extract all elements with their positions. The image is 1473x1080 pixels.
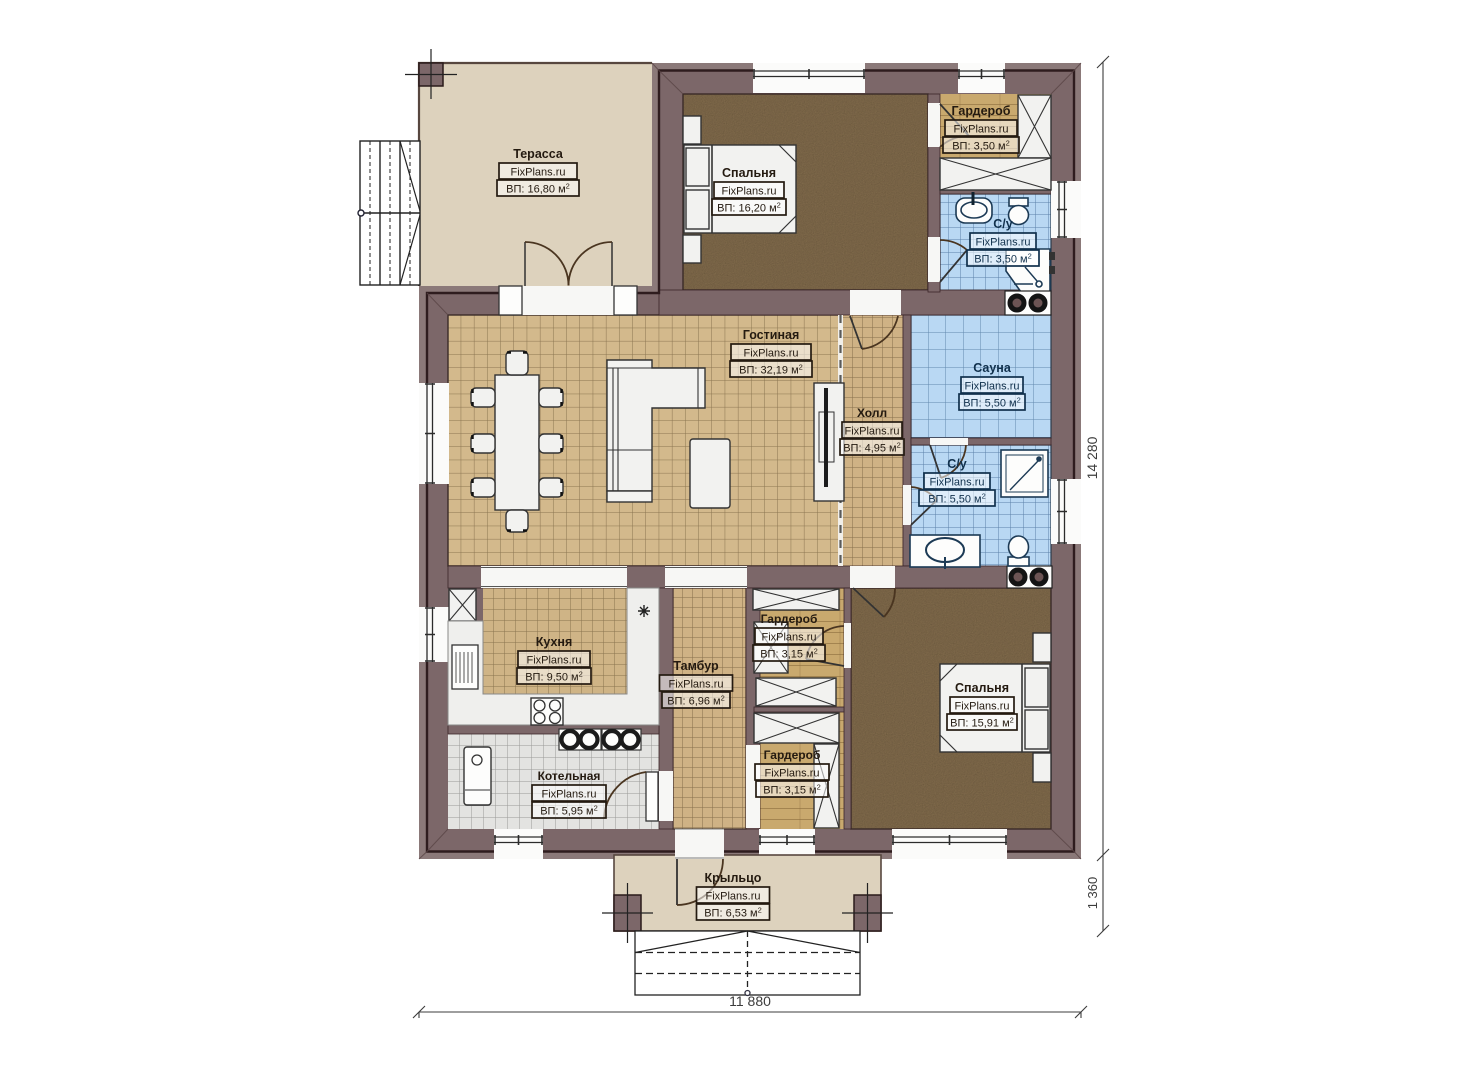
svg-text:Гардероб: Гардероб: [761, 612, 818, 626]
svg-text:Сауна: Сауна: [973, 361, 1012, 375]
svg-text:FixPlans.ru: FixPlans.ru: [929, 477, 984, 489]
svg-text:FixPlans.ru: FixPlans.ru: [541, 789, 596, 801]
svg-text:Гардероб: Гардероб: [951, 104, 1010, 118]
svg-text:FixPlans.ru: FixPlans.ru: [844, 426, 899, 438]
svg-text:ВП: 32,19 м2: ВП: 32,19 м2: [739, 363, 803, 377]
svg-text:Спальня: Спальня: [722, 166, 776, 180]
svg-text:ВП: 3,50 м2: ВП: 3,50 м2: [952, 139, 1010, 153]
svg-text:Терасса: Терасса: [513, 147, 564, 161]
svg-text:14 280: 14 280: [1084, 436, 1100, 479]
svg-text:FixPlans.ru: FixPlans.ru: [975, 237, 1030, 249]
svg-text:ВП: 15,91 м2: ВП: 15,91 м2: [950, 716, 1014, 730]
svg-text:Тамбур: Тамбур: [673, 659, 719, 673]
svg-text:FixPlans.ru: FixPlans.ru: [761, 632, 816, 644]
svg-text:Гардероб: Гардероб: [764, 748, 821, 762]
svg-text:FixPlans.ru: FixPlans.ru: [668, 679, 723, 691]
svg-text:ВП: 5,95 м2: ВП: 5,95 м2: [540, 804, 598, 818]
svg-text:ВП: 16,80 м2: ВП: 16,80 м2: [506, 182, 570, 196]
svg-text:Крыльцо: Крыльцо: [705, 871, 762, 885]
svg-text:Котельная: Котельная: [538, 769, 601, 783]
svg-text:ВП: 5,50 м2: ВП: 5,50 м2: [928, 492, 986, 506]
svg-text:ВП: 6,96 м2: ВП: 6,96 м2: [667, 694, 725, 708]
svg-text:FixPlans.ru: FixPlans.ru: [964, 381, 1019, 393]
svg-text:С/у: С/у: [993, 217, 1013, 231]
svg-text:ВП: 16,20 м2: ВП: 16,20 м2: [717, 201, 781, 215]
svg-text:ВП: 4,95 м2: ВП: 4,95 м2: [843, 441, 901, 455]
svg-text:Кухня: Кухня: [536, 635, 573, 649]
svg-text:ВП: 3,50 м2: ВП: 3,50 м2: [974, 252, 1032, 266]
svg-text:ВП: 6,53 м2: ВП: 6,53 м2: [704, 906, 762, 920]
svg-text:FixPlans.ru: FixPlans.ru: [953, 124, 1008, 136]
svg-text:FixPlans.ru: FixPlans.ru: [705, 891, 760, 903]
svg-text:Холл: Холл: [857, 406, 887, 420]
svg-text:Спальня: Спальня: [955, 681, 1009, 695]
svg-text:ВП: 5,50 м2: ВП: 5,50 м2: [963, 396, 1021, 410]
svg-text:FixPlans.ru: FixPlans.ru: [764, 768, 819, 780]
svg-text:С/у: С/у: [947, 457, 967, 471]
svg-text:FixPlans.ru: FixPlans.ru: [526, 655, 581, 667]
svg-text:FixPlans.ru: FixPlans.ru: [954, 701, 1009, 713]
svg-text:1 360: 1 360: [1085, 877, 1100, 910]
svg-text:Гостиная: Гостиная: [743, 328, 800, 342]
svg-text:ВП: 9,50 м2: ВП: 9,50 м2: [525, 670, 583, 684]
svg-text:ВП: 3,15 м2: ВП: 3,15 м2: [760, 647, 818, 661]
svg-text:ВП: 3,15 м2: ВП: 3,15 м2: [763, 783, 821, 797]
svg-text:FixPlans.ru: FixPlans.ru: [510, 167, 565, 179]
svg-text:FixPlans.ru: FixPlans.ru: [721, 186, 776, 198]
svg-text:FixPlans.ru: FixPlans.ru: [743, 348, 798, 360]
svg-text:11 880: 11 880: [729, 993, 771, 1009]
